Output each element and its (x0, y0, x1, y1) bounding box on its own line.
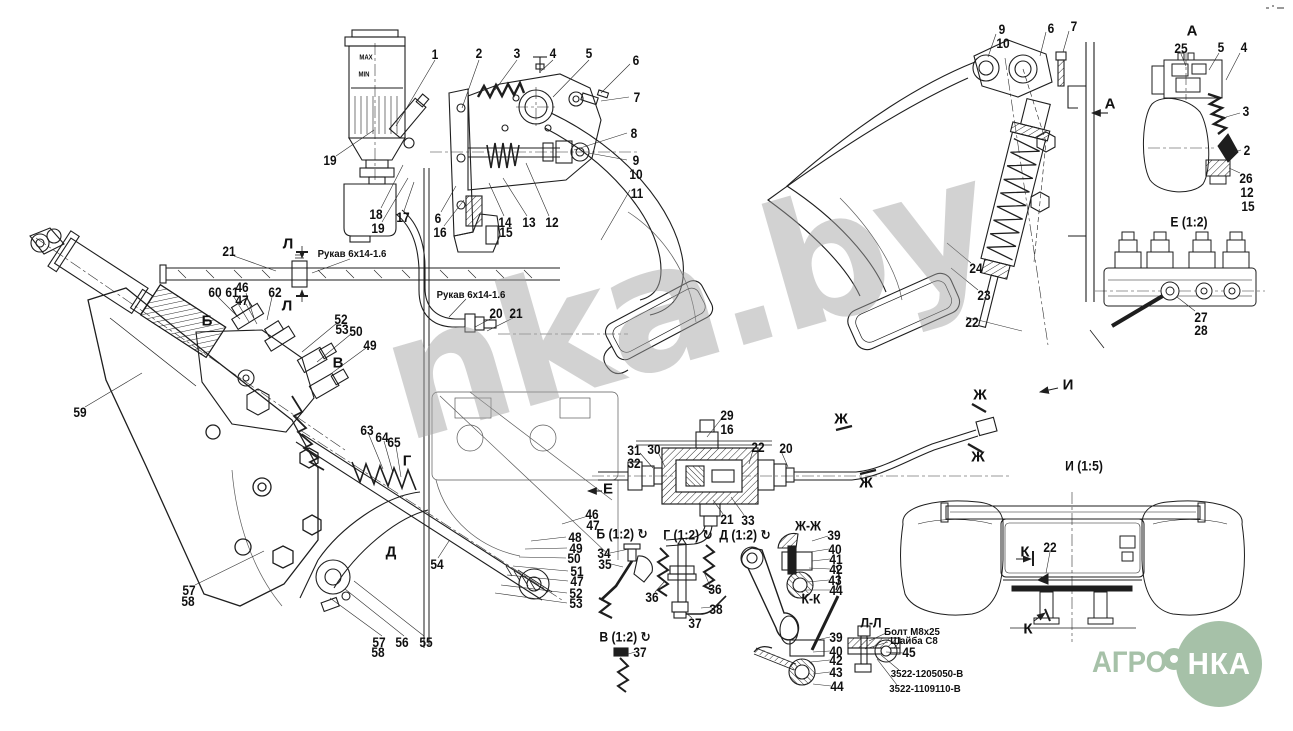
brand-text-nka: НКА (1187, 646, 1250, 682)
callout-33: 33 (741, 513, 754, 527)
corner-artifact (1266, 5, 1290, 11)
callout-22: 22 (965, 315, 978, 329)
callout-1: 1 (432, 47, 439, 61)
callout-MIN: MIN (359, 70, 370, 78)
callout-21: 21 (222, 244, 235, 258)
callout-28: 28 (1194, 323, 1207, 337)
callout-44: 44 (830, 679, 843, 693)
callout-6: 6 (633, 53, 640, 67)
callout-5: 5 (586, 46, 593, 60)
callout-60: 60 (208, 285, 221, 299)
callout-10: 10 (996, 36, 1009, 50)
callout-65: 65 (387, 435, 400, 449)
callout-5: 5 (1218, 40, 1225, 54)
callout-26: 26 (1239, 171, 1252, 185)
callout-21: 21 (720, 512, 733, 526)
callout-36: 36 (708, 582, 721, 596)
callout-19: 19 (323, 153, 336, 167)
callout-30: 30 (647, 442, 660, 456)
callout-MAX: MAX (359, 53, 372, 61)
callout-12: 12 (545, 215, 558, 229)
callout-39: 39 (827, 528, 840, 542)
callout-Л: Л (282, 299, 293, 314)
callout-20: 20 (779, 441, 792, 455)
callout-58: 58 (371, 645, 384, 659)
callout-13: 13 (522, 215, 535, 229)
callout-15: 15 (499, 225, 512, 239)
callout-Б (1:2) ↻: Б (1:2) ↻ (596, 527, 647, 541)
callout-29: 29 (720, 408, 733, 422)
callout-6: 6 (435, 211, 442, 225)
callout-38: 38 (709, 602, 722, 616)
callout-Ж: Ж (971, 450, 985, 465)
callout-22: 22 (1043, 540, 1056, 554)
callout-2: 2 (1244, 143, 1251, 157)
callout-49: 49 (363, 338, 376, 352)
callout-К: К (1020, 545, 1029, 560)
callout-Ж: Ж (859, 476, 873, 491)
callout-25: 25 (1174, 41, 1187, 55)
callout-19: 19 (371, 221, 384, 235)
callout-Ж: Ж (973, 388, 987, 403)
callout-Д (1:2) ↻: Д (1:2) ↻ (719, 528, 770, 542)
brand-text-agro: АГРО (1092, 646, 1167, 680)
callout-2: 2 (476, 46, 483, 60)
callout-47: 47 (235, 293, 248, 307)
callout-45: 45 (902, 645, 915, 659)
callout-37: 37 (688, 616, 701, 630)
callout-63: 63 (360, 423, 373, 437)
callout-4: 4 (1241, 40, 1248, 54)
callout-20: 20 (489, 306, 502, 320)
callout-3522-1205050-В: 3522-1205050-В (891, 669, 964, 680)
callout-Рукав 6х14-1.6: Рукав 6х14-1.6 (318, 249, 387, 260)
callout-10: 10 (629, 167, 642, 181)
callout-3: 3 (514, 46, 521, 60)
callout-Г (1:2) ↻: Г (1:2) ↻ (663, 528, 712, 542)
callout-44: 44 (829, 583, 842, 597)
callout-3522-1109110-В: 3522-1109110-В (889, 684, 960, 695)
callout-56: 56 (395, 635, 408, 649)
callout-layer: MAXMIN1234567891011191819176161415131291… (0, 0, 1293, 731)
callout-Рукав 6х14-1.6: Рукав 6х14-1.6 (437, 290, 506, 301)
callout-Ж: Ж (834, 412, 848, 427)
callout-Е: Е (603, 482, 613, 497)
callout-К: К (1023, 622, 1032, 637)
callout-7: 7 (634, 90, 641, 104)
callout-16: 16 (720, 422, 733, 436)
callout-58: 58 (181, 594, 194, 608)
callout-Л: Л (283, 237, 294, 252)
callout-3: 3 (1243, 104, 1250, 118)
callout-А: А (1105, 97, 1116, 112)
callout-8: 8 (631, 126, 638, 140)
callout-11: 11 (631, 186, 644, 200)
callout-55: 55 (419, 635, 432, 649)
callout-В (1:2) ↻: В (1:2) ↻ (599, 630, 650, 644)
callout-6: 6 (1048, 21, 1055, 35)
callout-4: 4 (550, 46, 557, 60)
callout-К-К: К-К (802, 592, 821, 606)
callout-53: 53 (335, 322, 348, 336)
callout-9: 9 (999, 22, 1006, 36)
callout-И: И (1063, 378, 1074, 393)
callout-22: 22 (751, 440, 764, 454)
callout-12: 12 (1240, 185, 1253, 199)
callout-53: 53 (569, 596, 582, 610)
callout-Ж-Ж: Ж-Ж (795, 519, 821, 533)
callout-24: 24 (969, 261, 982, 275)
callout-Б: Б (202, 314, 213, 329)
callout-37: 37 (633, 645, 646, 659)
callout-39: 39 (829, 630, 842, 644)
callout-59: 59 (73, 405, 86, 419)
brand-circle: НКА (1176, 621, 1262, 707)
callout-9: 9 (633, 153, 640, 167)
drawing-sheet: nka.by MAXMIN123456789101119181917616141… (0, 0, 1293, 731)
callout-16: 16 (433, 225, 446, 239)
callout-54: 54 (430, 557, 443, 571)
brand-ring-icon (1163, 648, 1185, 670)
callout-И (1:5): И (1:5) (1065, 459, 1103, 473)
callout-В: В (333, 356, 344, 371)
callout-36: 36 (645, 590, 658, 604)
callout-Е (1:2): Е (1:2) (1170, 215, 1207, 229)
callout-50: 50 (349, 324, 362, 338)
callout-Д: Д (386, 545, 397, 560)
callout-62: 62 (268, 285, 281, 299)
callout-7: 7 (1071, 19, 1078, 33)
callout-23: 23 (977, 288, 990, 302)
callout-А: А (1187, 24, 1198, 39)
callout-15: 15 (1241, 199, 1254, 213)
callout-21: 21 (509, 306, 522, 320)
callout-17: 17 (396, 210, 409, 224)
callout-Г: Г (403, 454, 412, 469)
callout-Л-Л: Л-Л (860, 616, 881, 630)
callout-18: 18 (369, 207, 382, 221)
callout-32: 32 (627, 456, 640, 470)
callout-43: 43 (829, 665, 842, 679)
callout-35: 35 (598, 557, 611, 571)
